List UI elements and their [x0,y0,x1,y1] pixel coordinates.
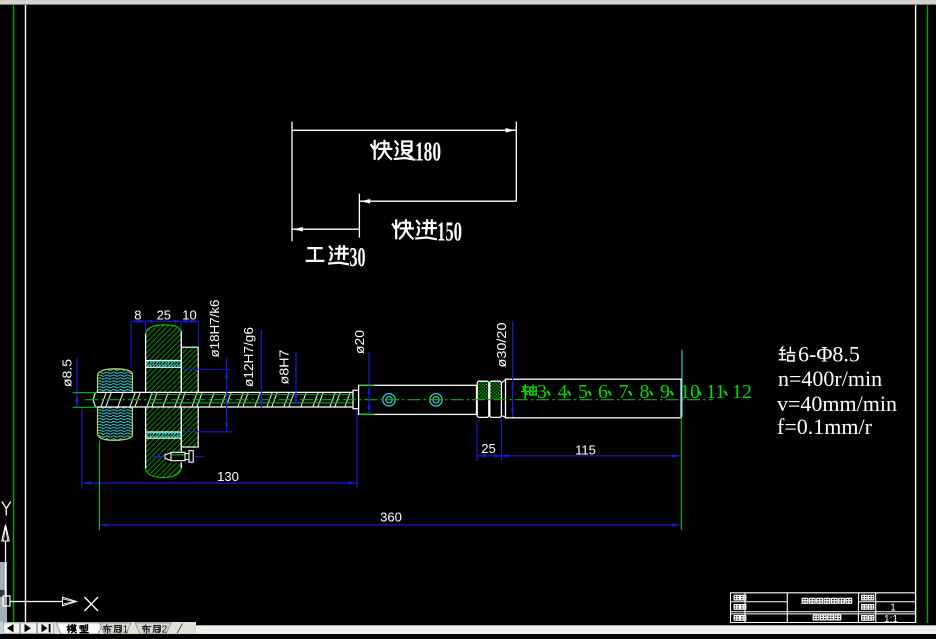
svg-text:360: 360 [380,510,402,525]
svg-text:6-Φ8.5: 6-Φ8.5 [798,342,860,367]
svg-text:3: 3 [537,381,547,403]
svg-text:v=40mm/min: v=40mm/min [777,391,897,416]
svg-text:130: 130 [217,469,239,484]
svg-text:n=400r/min: n=400r/min [778,366,882,391]
svg-text:25: 25 [481,441,495,456]
svg-text:10: 10 [680,381,700,403]
svg-text:115: 115 [575,443,596,458]
svg-text:ø12H7/g6: ø12H7/g6 [242,327,256,387]
svg-text:f=0.1mm/r: f=0.1mm/r [777,414,873,439]
svg-text:8: 8 [134,308,141,323]
svg-text:8: 8 [640,381,650,403]
svg-text:1: 1 [890,603,896,614]
svg-text:11: 11 [706,381,725,403]
svg-text:ø20: ø20 [353,330,367,354]
svg-text:9: 9 [660,381,670,403]
svg-text:ø30/20: ø30/20 [495,322,509,367]
svg-text:180: 180 [415,137,441,167]
svg-text:150: 150 [437,217,462,247]
svg-text:ø8H7: ø8H7 [278,349,292,384]
svg-text:ø8.5: ø8.5 [60,359,74,387]
svg-text:10: 10 [182,308,196,323]
svg-text:25: 25 [157,308,171,323]
svg-text:12: 12 [732,381,752,403]
svg-text:7: 7 [619,381,629,403]
svg-text:30: 30 [350,242,366,272]
svg-text:5: 5 [578,381,588,403]
svg-text:4: 4 [558,381,568,403]
svg-text:1:1: 1:1 [884,614,898,625]
svg-text:2: 2 [162,623,168,634]
svg-text:1: 1 [123,623,129,634]
svg-text:ø18H7/k6: ø18H7/k6 [208,299,222,357]
svg-text:6: 6 [598,381,608,403]
